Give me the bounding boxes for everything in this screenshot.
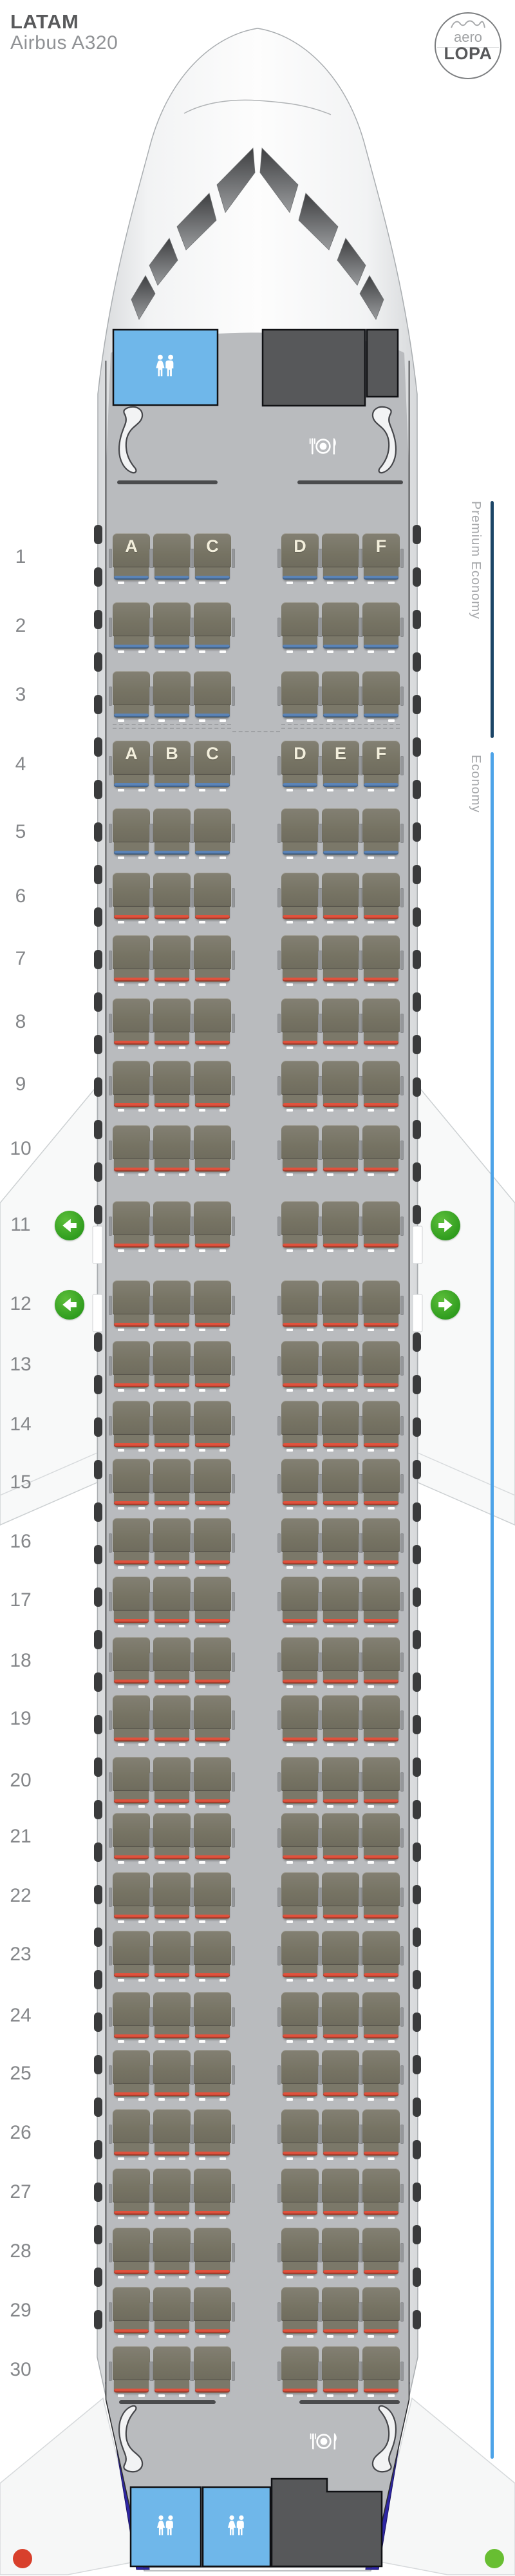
window [94,1927,102,1947]
seat-7B [153,935,191,984]
class-divider [232,731,280,732]
seat-7D [281,935,319,984]
exit-door [413,1226,422,1264]
window [413,1927,421,1947]
seat-letter: F [362,744,400,764]
seat-13C [194,1341,231,1390]
seat-7C [194,935,231,984]
seat-letter: C [194,744,231,764]
window [413,1035,421,1054]
seat-4B: B [153,741,191,790]
red-status-dot [13,2549,32,2568]
seat-letter: A [113,536,150,556]
seat-25E [322,2050,359,2099]
seat-13B [153,1341,191,1390]
seat-6D [281,873,319,922]
seat-4F: F [362,741,400,790]
seat-8E [322,998,359,1047]
seat-27D [281,2168,319,2217]
window [413,2268,421,2287]
window [413,2012,421,2032]
seat-7A [113,935,150,984]
seat-10A [113,1125,150,1174]
seat-24B [153,1992,191,2041]
seat-3E [322,671,359,720]
front-bulkhead-left [117,480,218,484]
window [413,1757,421,1777]
row-number-3: 3 [4,684,37,706]
seat-5D [281,808,319,857]
seat-6C [194,873,231,922]
window [94,1162,102,1182]
seat-10C [194,1125,231,1174]
seat-24A [113,1992,150,2041]
window [94,1120,102,1139]
window [413,1672,421,1692]
row-number-5: 5 [4,821,37,843]
seat-6F [362,873,400,922]
seat-30F [362,2346,400,2395]
window [94,1672,102,1692]
seat-18E [322,1637,359,1686]
seat-9A [113,1061,150,1110]
seat-20C [194,1757,231,1806]
window [94,1460,102,1479]
window [413,1970,421,1989]
window [413,1460,421,1479]
window [94,737,102,757]
seat-27F [362,2168,400,2217]
seat-3D [281,671,319,720]
window [413,525,421,544]
seat-18D [281,1637,319,1686]
window [94,2140,102,2159]
seat-29D [281,2287,319,2336]
window [94,907,102,927]
window [94,1757,102,1777]
rear-lavatory-center [203,2487,270,2566]
seat-17D [281,1577,319,1625]
window [413,737,421,757]
window [413,2140,421,2159]
row-number-4: 4 [4,753,37,775]
row-number-14: 14 [4,1414,37,1435]
row-number-17: 17 [4,1589,37,1611]
seat-22E [322,1872,359,1921]
row-number-28: 28 [4,2240,37,2262]
seat-2F [362,602,400,651]
window [413,865,421,884]
seat-letter: B [153,744,191,764]
seat-10B [153,1125,191,1174]
seat-1E [322,533,359,582]
seat-24F [362,1992,400,2041]
window [94,822,102,842]
window [94,950,102,969]
window [94,780,102,799]
seat-6A [113,873,150,922]
seat-7F [362,935,400,984]
seat-21A [113,1813,150,1862]
front-lavatory [113,330,218,405]
row-number-11: 11 [4,1214,37,1236]
seat-26A [113,2109,150,2158]
seat-18C [194,1637,231,1686]
window [94,1842,102,1862]
seat-14E [322,1401,359,1450]
window [94,1332,102,1352]
aerolopa-logo: aero LOPA [435,12,501,79]
row-number-8: 8 [4,1011,37,1033]
seat-13E [322,1341,359,1390]
exit-door [93,1294,102,1332]
window [94,525,102,544]
seat-10F [362,1125,400,1174]
seat-28E [322,2228,359,2277]
row-number-15: 15 [4,1472,37,1493]
seat-30B [153,2346,191,2395]
seat-22B [153,1872,191,1921]
exit-arrow-right-row-11 [431,1211,460,1240]
seat-25A [113,2050,150,2099]
seat-16F [362,1518,400,1567]
seat-26B [153,2109,191,2158]
seat-13D [281,1341,319,1390]
window [413,695,421,714]
seat-1D: D [281,533,319,582]
airline-name: LATAM [10,10,79,33]
logo-text-top: aero [436,30,500,44]
row-number-6: 6 [4,885,37,907]
seat-21E [322,1813,359,1862]
window [94,992,102,1012]
seat-15C [194,1459,231,1508]
window [413,1417,421,1437]
window [94,1800,102,1819]
seat-14F [362,1401,400,1450]
seat-27E [322,2168,359,2217]
seat-15E [322,1459,359,1508]
window [413,1842,421,1862]
seat-28C [194,2228,231,2277]
seat-1C: C [194,533,231,582]
window [94,1205,102,1224]
seat-20F [362,1757,400,1806]
seat-letter: F [362,536,400,556]
rear-galley [272,2479,382,2566]
seat-12A [113,1280,150,1329]
row-number-2: 2 [4,615,37,637]
seat-28B [153,2228,191,2277]
front-bulkhead-right [297,480,403,484]
seat-12E [322,1280,359,1329]
seat-25C [194,2050,231,2099]
seat-11E [322,1201,359,1250]
seat-24D [281,1992,319,2041]
window [413,2098,421,2117]
window [413,907,421,927]
seat-letter: A [113,744,150,764]
window [94,2055,102,2074]
seat-12B [153,1280,191,1329]
seat-9B [153,1061,191,1110]
seat-21F [362,1813,400,1862]
class-divider [281,728,400,729]
seat-5F [362,808,400,857]
window [413,2183,421,2202]
window [413,652,421,672]
window [94,1375,102,1394]
seat-27C [194,2168,231,2217]
seat-23D [281,1931,319,1980]
seat-12F [362,1280,400,1329]
seat-19E [322,1695,359,1744]
window [413,610,421,629]
window [94,2183,102,2202]
window [413,1502,421,1522]
seat-3A [113,671,150,720]
seat-2B [153,602,191,651]
row-number-30: 30 [4,2359,37,2381]
row-number-21: 21 [4,1826,37,1848]
seat-11B [153,1201,191,1250]
seat-1B [153,533,191,582]
row-number-24: 24 [4,2005,37,2027]
seat-8C [194,998,231,1047]
seat-14C [194,1401,231,1450]
seat-24E [322,1992,359,2041]
seat-29C [194,2287,231,2336]
seat-23B [153,1931,191,1980]
exit-arrow-right-row-12 [431,1290,460,1320]
seat-17A [113,1577,150,1625]
window [94,1970,102,1989]
economy-line [491,752,494,2459]
seat-4A: A [113,741,150,790]
seat-10D [281,1125,319,1174]
exit-arrow-left-row-11 [55,1211,84,1240]
window [94,1545,102,1564]
seat-14A [113,1401,150,1450]
seat-17B [153,1577,191,1625]
seat-25D [281,2050,319,2099]
seat-9C [194,1061,231,1110]
seat-19C [194,1695,231,1744]
seat-1A: A [113,533,150,582]
row-number-19: 19 [4,1708,37,1730]
seat-5A [113,808,150,857]
seat-29F [362,2287,400,2336]
seat-27B [153,2168,191,2217]
seat-23F [362,1931,400,1980]
window [413,1587,421,1607]
seat-15A [113,1459,150,1508]
window [94,1417,102,1437]
seat-5C [194,808,231,857]
seat-22D [281,1872,319,1921]
seat-21D [281,1813,319,1862]
window [413,950,421,969]
row-number-10: 10 [4,1138,37,1160]
seat-23E [322,1931,359,1980]
seat-11A [113,1201,150,1250]
seat-26D [281,2109,319,2158]
front-galley-small [367,330,398,397]
window [413,992,421,1012]
seat-20A [113,1757,150,1806]
window [413,1545,421,1564]
seat-letter: D [281,744,319,764]
window [94,652,102,672]
premium-economy-line [491,501,494,738]
seat-29A [113,2287,150,2336]
seat-9F [362,1061,400,1110]
seat-21C [194,1813,231,1862]
class-divider [113,724,231,725]
class-divider [281,724,400,725]
seat-13F [362,1341,400,1390]
exit-door [413,1294,422,1332]
window [413,567,421,587]
seat-17F [362,1577,400,1625]
row-number-22: 22 [4,1885,37,1907]
window [94,1035,102,1054]
seat-30E [322,2346,359,2395]
seat-letter: E [322,744,359,764]
seat-22C [194,1872,231,1921]
row-number-7: 7 [4,948,37,970]
seat-12D [281,1280,319,1329]
row-number-25: 25 [4,2063,37,2085]
rear-bulkhead-right [299,2400,400,2404]
window [413,1375,421,1394]
economy-label: Economy [465,755,483,813]
aircraft-drawing [0,0,515,2576]
seat-2D [281,602,319,651]
window [413,2225,421,2244]
seat-map-page: LATAM Airbus A320 aero LOPA Premium Econ… [0,0,515,2576]
seat-3B [153,671,191,720]
window [413,1205,421,1224]
window [94,1885,102,1904]
row-number-18: 18 [4,1650,37,1672]
seat-29E [322,2287,359,2336]
seat-4E: E [322,741,359,790]
seat-30A [113,2346,150,2395]
seat-27A [113,2168,150,2217]
seat-1F: F [362,533,400,582]
seat-9D [281,1061,319,1110]
seat-15B [153,1459,191,1508]
window [94,2225,102,2244]
seat-25B [153,2050,191,2099]
window [413,1885,421,1904]
seat-22A [113,1872,150,1921]
seat-9E [322,1061,359,1110]
rear-bulkhead-left [119,2400,216,2404]
seat-18F [362,1637,400,1686]
row-number-23: 23 [4,1944,37,1965]
class-divider [113,728,231,729]
seat-8D [281,998,319,1047]
seat-16C [194,1518,231,1567]
window [413,822,421,842]
seat-26E [322,2109,359,2158]
window [413,1715,421,1734]
logo-wave-icon [450,19,486,29]
seat-19D [281,1695,319,1744]
seat-8F [362,998,400,1047]
window [94,1715,102,1734]
rear-lavatory-left [131,2487,201,2566]
row-number-12: 12 [4,1293,37,1315]
seat-letter: D [281,536,319,556]
window [413,2055,421,2074]
window [94,2268,102,2287]
seat-2A [113,602,150,651]
window [94,1077,102,1097]
seat-20B [153,1757,191,1806]
green-status-dot [485,2549,504,2568]
row-number-9: 9 [4,1074,37,1095]
window [94,610,102,629]
window [94,695,102,714]
seat-10E [322,1125,359,1174]
seat-3C [194,671,231,720]
seat-11D [281,1201,319,1250]
seat-13A [113,1341,150,1390]
seat-5B [153,808,191,857]
seat-30D [281,2346,319,2395]
seat-6B [153,873,191,922]
seat-28F [362,2228,400,2277]
row-number-20: 20 [4,1770,37,1792]
seat-2E [322,602,359,651]
seat-8B [153,998,191,1047]
seat-20D [281,1757,319,1806]
window [413,780,421,799]
window [94,1502,102,1522]
seat-14D [281,1401,319,1450]
row-number-1: 1 [4,546,37,568]
seat-14B [153,1401,191,1450]
seat-15F [362,1459,400,1508]
seat-18B [153,1637,191,1686]
seat-18A [113,1637,150,1686]
seat-17E [322,1577,359,1625]
seat-21B [153,1813,191,1862]
seat-28D [281,2228,319,2277]
row-number-29: 29 [4,2300,37,2322]
seat-4D: D [281,741,319,790]
row-number-27: 27 [4,2181,37,2203]
seat-23A [113,1931,150,1980]
aircraft-type: Airbus A320 [10,32,118,54]
seat-28A [113,2228,150,2277]
seat-15D [281,1459,319,1508]
seat-17C [194,1577,231,1625]
seat-11C [194,1201,231,1250]
window [413,1077,421,1097]
window [413,1800,421,1819]
window [94,567,102,587]
window [94,865,102,884]
seat-30C [194,2346,231,2395]
window [413,1630,421,1649]
window [94,1630,102,1649]
premium-economy-label: Premium Economy [465,501,483,620]
window [94,2012,102,2032]
